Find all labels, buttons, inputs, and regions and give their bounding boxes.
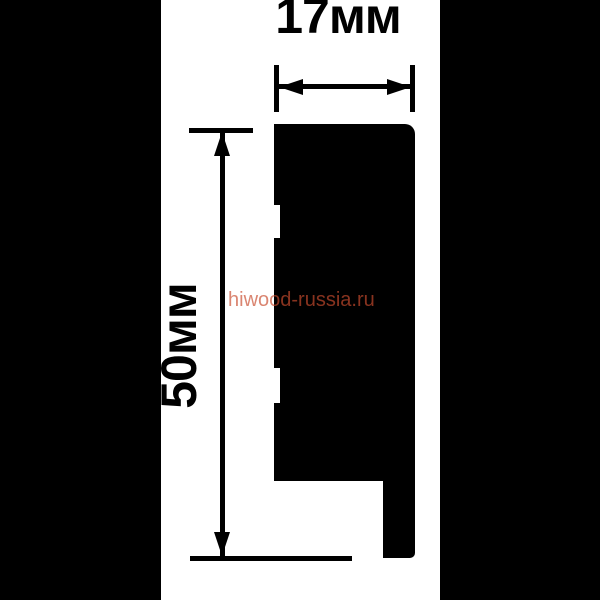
bottom-baseline [190,556,352,561]
height-dim-down-arrowhead-icon [214,532,230,556]
width-dimension-label: 17мм [275,0,401,41]
product-drawing: 17мм 50мм hiwood-russia.ru [0,0,600,600]
height-dimension-label: 50мм [154,283,204,409]
profile-left-notch-upper [274,205,280,238]
letterbox-left-bar [0,0,161,600]
profile-bottom-foot [383,480,415,558]
watermark-text: hiwood-russia.ru [228,290,375,310]
profile-left-notch-lower [274,368,280,403]
height-dim-line [220,131,225,556]
letterbox-right-bar [440,0,600,600]
width-dim-left-arrowhead-icon [279,79,303,95]
width-dim-right-arrowhead-icon [387,79,411,95]
height-dim-up-arrowhead-icon [214,132,230,156]
